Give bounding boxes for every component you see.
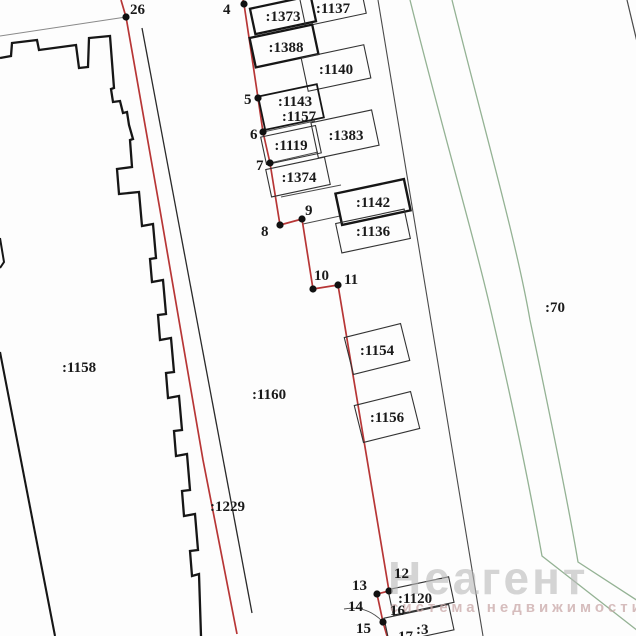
parcel-label-1142[interactable]: :1142	[356, 195, 390, 211]
parcel-label-1119[interactable]: :1119	[274, 138, 307, 154]
point-label-15: 15	[356, 621, 371, 636]
cadastral-map-viewport: Неагент система недвижимости :1373 :1137…	[0, 0, 636, 636]
vertex-dot-5	[254, 94, 261, 101]
vertex-dot-4	[240, 0, 247, 7]
vertex-dot-10	[309, 285, 316, 292]
corner-line-top-right	[627, 0, 636, 46]
point-label-7: 7	[256, 158, 264, 174]
boundary-line-west	[121, 0, 237, 634]
point-label-8: 8	[261, 224, 269, 240]
point-label-12: 12	[394, 566, 409, 582]
point-label-16: 16	[390, 603, 406, 619]
building-edge-bottom-left	[0, 352, 55, 636]
vertex-dot-11	[334, 281, 341, 288]
point-label-13: 13	[352, 578, 367, 594]
point-label-10: 10	[314, 268, 329, 284]
vertex-dot-6	[259, 128, 266, 135]
neighbor-boundary-green-1	[410, 0, 636, 631]
vertex-dot-15	[379, 618, 386, 625]
point-label-5: 5	[244, 92, 252, 108]
parcel-label-1229[interactable]: :1229	[210, 499, 245, 515]
parcel-label-1143[interactable]: :1143	[278, 94, 312, 110]
point-label-17: 17	[398, 629, 414, 636]
parcel-label-1136[interactable]: :1136	[356, 224, 391, 240]
parcel-label-1140[interactable]: :1140	[319, 62, 353, 78]
parcel-label-1374[interactable]: :1374	[282, 170, 317, 186]
vertex-dot-7	[266, 159, 273, 166]
parcel-label-1373[interactable]: :1373	[266, 9, 301, 25]
parcel-label-1158[interactable]: :1158	[62, 360, 96, 376]
vertex-dot-8	[276, 221, 283, 228]
parcel-label-1137[interactable]: :1137	[316, 1, 351, 17]
parcel-label-1156[interactable]: :1156	[370, 410, 405, 426]
parcel-label-1160[interactable]: :1160	[252, 387, 286, 403]
point-label-14: 14	[348, 599, 364, 615]
point-label-6: 6	[250, 127, 258, 143]
parcel-boundary-long-diagonal	[378, 0, 483, 636]
leader-line-point-26	[0, 17, 126, 36]
vertex-dot-13	[373, 590, 380, 597]
parcel-label-1154[interactable]: :1154	[360, 343, 395, 359]
vertex-dot-26	[122, 13, 129, 20]
point-label-9: 9	[305, 203, 313, 219]
building-corner-left-edge	[0, 238, 4, 268]
parcel-label-3[interactable]: :3	[416, 622, 429, 636]
parcel-label-1157[interactable]: :1157	[282, 109, 317, 125]
parcel-label-1388[interactable]: :1388	[269, 40, 304, 56]
parcel-label-70[interactable]: :70	[545, 300, 565, 316]
point-label-26: 26	[130, 2, 146, 18]
point-label-4: 4	[223, 2, 231, 18]
parcel-label-1383[interactable]: :1383	[329, 128, 364, 144]
point-label-11: 11	[344, 272, 358, 288]
parcel-divider-3	[281, 185, 341, 197]
neighbor-boundary-green-2	[452, 0, 636, 601]
cadastral-map: Неагент система недвижимости :1373 :1137…	[0, 0, 636, 636]
building-outline-upper-left	[0, 36, 201, 636]
